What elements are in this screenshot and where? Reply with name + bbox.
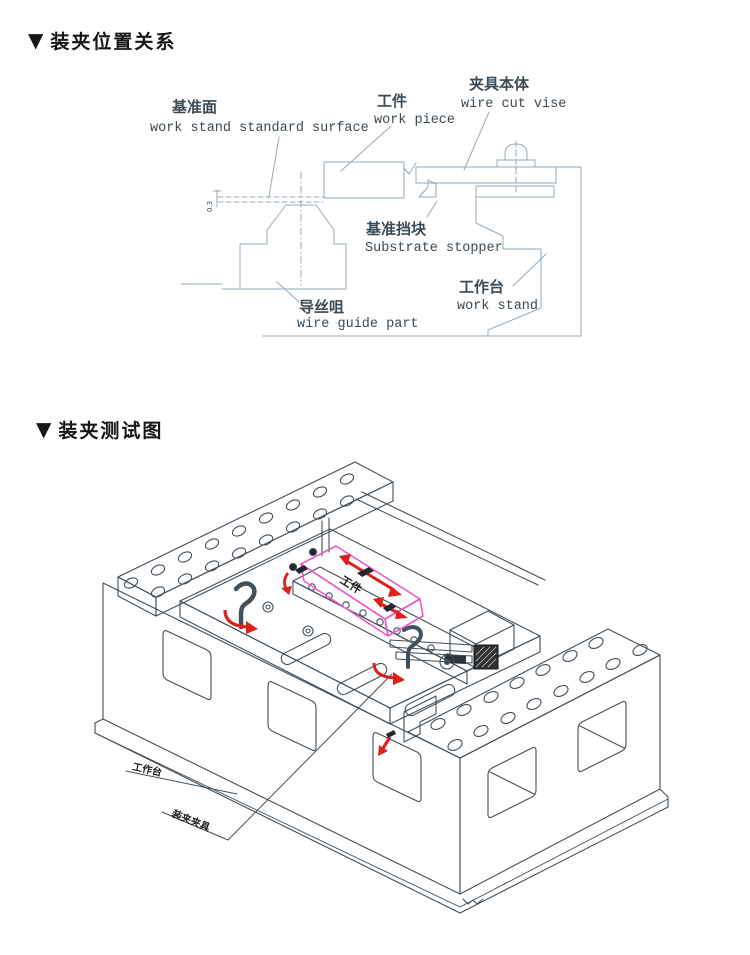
label-substrate-stopper-zh: 基准挡块 <box>365 220 427 238</box>
label-work-stand-zh: 工作台 <box>459 278 504 296</box>
knurled-knob <box>474 645 498 669</box>
label-work-stand-en: work stand <box>457 299 538 314</box>
clamping-test-figure <box>95 462 668 913</box>
label-wire-cut-vise-en: wire cut vise <box>461 97 566 112</box>
label-standard-surface-en: work stand standard surface <box>150 121 369 136</box>
label-fixture-figure: 装夹夹具 <box>169 806 212 833</box>
wire-guide-shape <box>181 172 346 289</box>
clamp-wrench-left <box>236 584 254 627</box>
vise-body-section <box>416 141 556 197</box>
label-wire-cut-vise-zh: 夹具本体 <box>469 75 530 93</box>
clamping-rail-left <box>118 462 545 616</box>
label-wire-guide-en: wire guide part <box>297 317 419 332</box>
workpiece-section <box>324 162 416 198</box>
scanned-manual-page: ▼ 装夹位置关系 ▼ 装夹测试图 <box>0 0 750 955</box>
dimension-value: 0.3 <box>206 201 214 212</box>
dimension-mark <box>213 190 323 207</box>
leader-lines <box>269 112 546 302</box>
label-substrate-stopper-en: Substrate stopper <box>365 241 503 256</box>
label-workpiece: 工件 <box>338 573 365 597</box>
rail-holes <box>123 472 356 599</box>
clamping-position-labels: 0.3 基准面 work stand standard surface 工件 w… <box>150 75 566 332</box>
clamp-wrench-right <box>404 627 421 667</box>
label-standard-surface-zh: 基准面 <box>171 98 217 116</box>
label-wire-guide-zh: 导丝咀 <box>299 298 344 316</box>
clamp-blocks <box>295 565 396 738</box>
workpiece-box <box>301 546 423 636</box>
label-work-piece-zh: 工件 <box>377 92 407 110</box>
label-work-piece-en: work piece <box>374 113 455 128</box>
figure-leader-lines <box>126 674 392 840</box>
page-figures: 0.3 基准面 work stand standard surface 工件 w… <box>0 0 750 955</box>
